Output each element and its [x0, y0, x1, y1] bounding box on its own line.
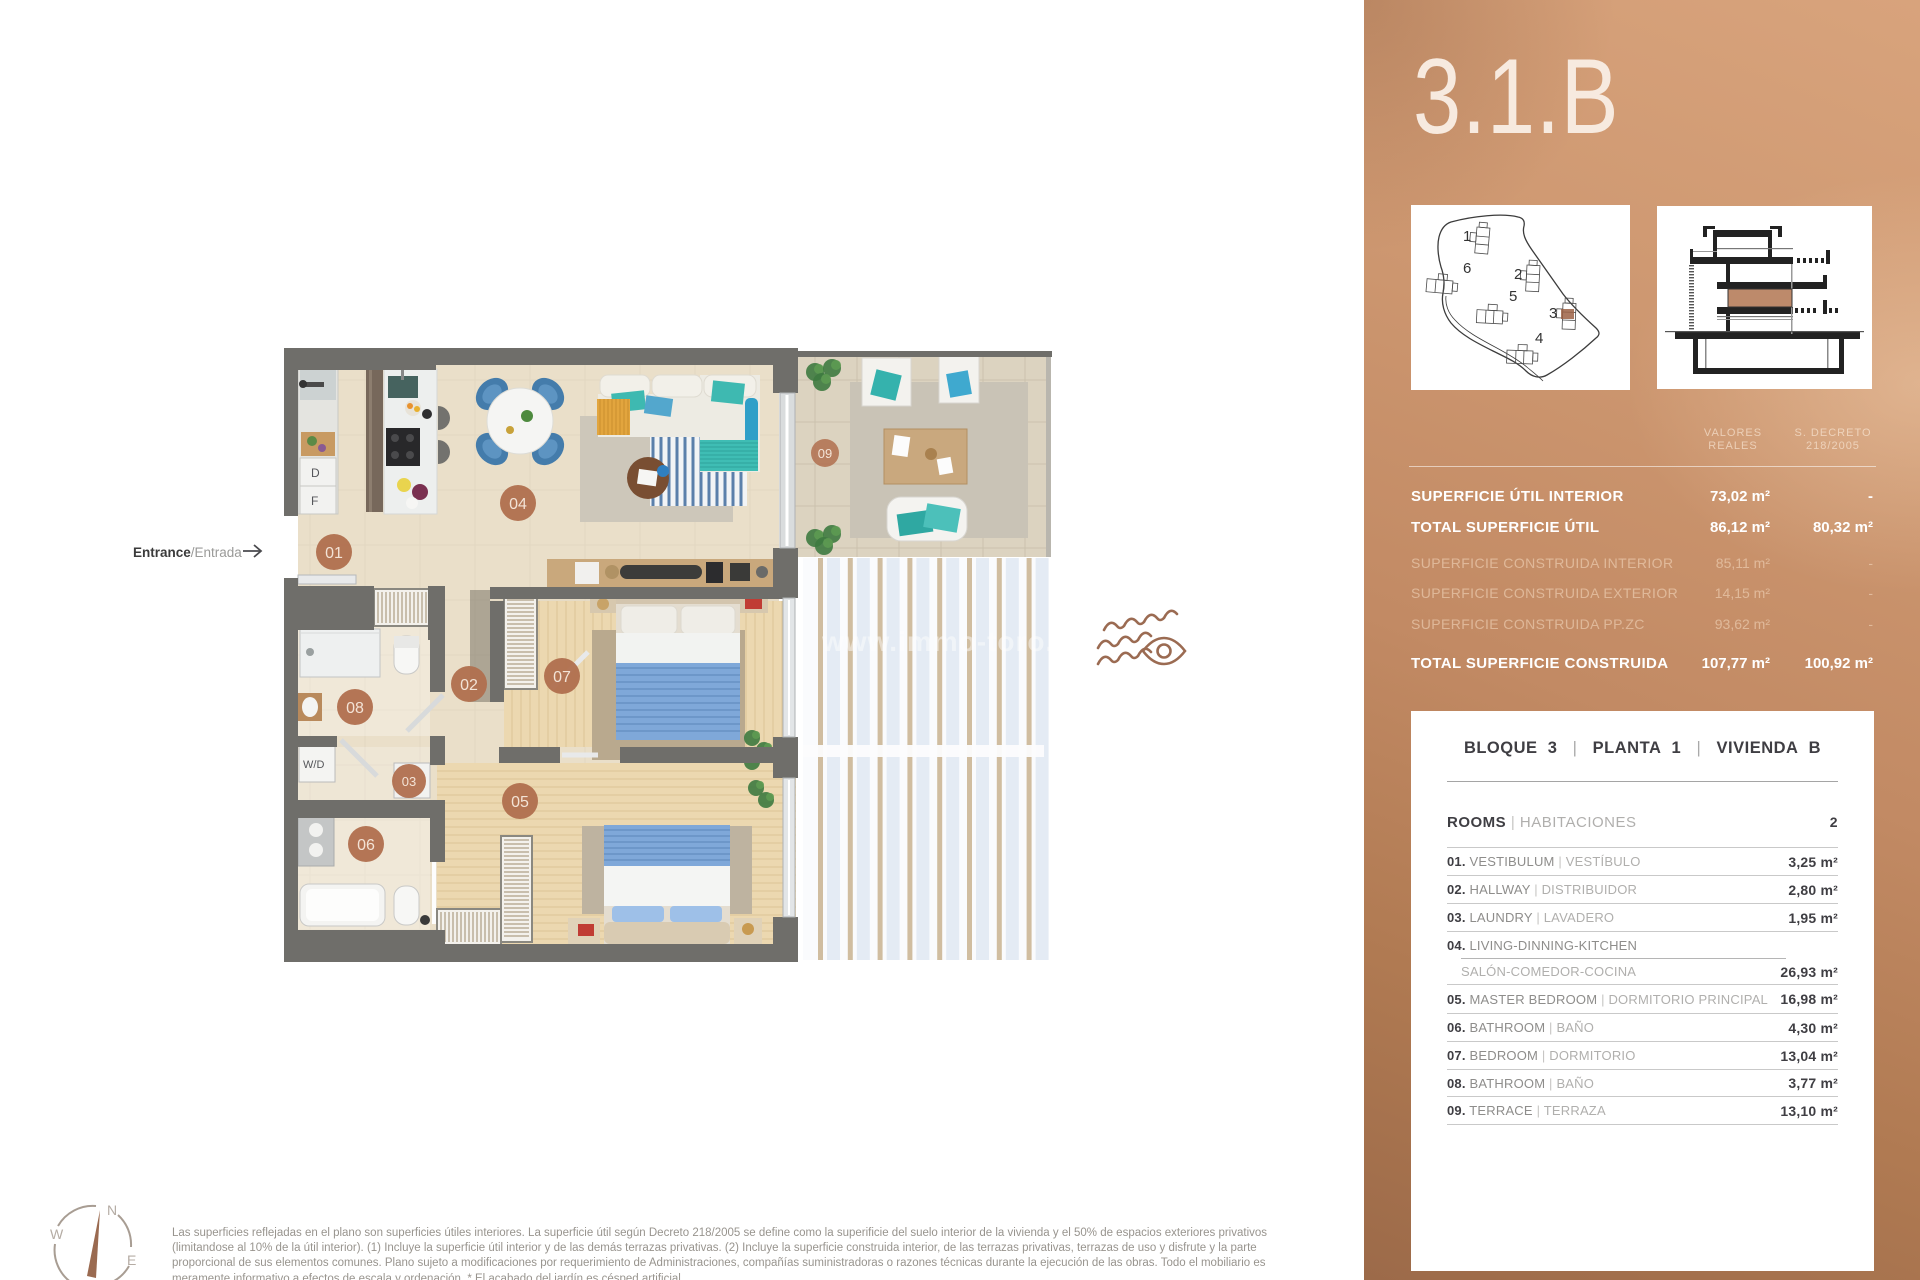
svg-text:6: 6	[1463, 260, 1471, 277]
svg-text:www.immo-toro.c: www.immo-toro.c	[821, 626, 1071, 657]
svg-text:E: E	[127, 1252, 136, 1268]
svg-text:3: 3	[1549, 305, 1557, 322]
svg-text:W/D: W/D	[303, 759, 324, 771]
svg-text:04: 04	[509, 496, 527, 513]
svg-text:08: 08	[346, 700, 364, 717]
svg-text:03: 03	[402, 774, 416, 789]
svg-text:2: 2	[1514, 266, 1522, 283]
svg-text:06: 06	[357, 837, 375, 854]
svg-text:D: D	[311, 466, 320, 480]
svg-text:01: 01	[325, 545, 343, 562]
svg-text:4: 4	[1535, 330, 1543, 347]
svg-text:1: 1	[1463, 228, 1471, 245]
svg-text:Entrance/Entrada: Entrance/Entrada	[133, 545, 242, 560]
svg-text:W: W	[50, 1226, 64, 1242]
svg-text:05: 05	[511, 794, 529, 811]
svg-text:N: N	[107, 1202, 117, 1218]
svg-text:02: 02	[460, 677, 478, 694]
svg-text:F: F	[311, 494, 318, 508]
svg-text:5: 5	[1509, 288, 1517, 305]
svg-text:09: 09	[818, 446, 832, 461]
svg-text:07: 07	[553, 669, 571, 686]
